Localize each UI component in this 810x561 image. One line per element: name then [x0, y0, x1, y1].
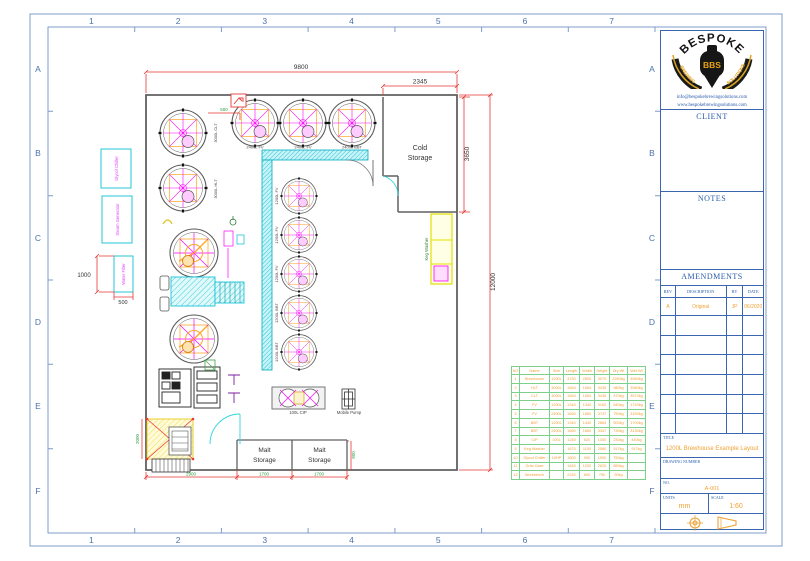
cell-name: Grist Case: [520, 462, 550, 471]
logo-box: BESPOKE BBS BREWING SOLUTIONS info@bespo…: [661, 31, 763, 109]
malt1-label-2: Storage: [253, 457, 276, 464]
dim-pipe-offset: 500: [220, 107, 228, 112]
keg-equipment: [159, 367, 240, 408]
cell-width: 2500: [580, 375, 595, 384]
amendment-empty-row: [661, 354, 763, 374]
cell-length: 1340: [564, 418, 580, 427]
cell-height: 1900: [595, 453, 610, 462]
parts-table-header-cell: Height: [595, 367, 610, 375]
cell-no: 11: [512, 462, 520, 471]
cell-name: HLT: [520, 383, 550, 392]
cell-dry-wt: 917kg: [610, 445, 628, 454]
grid-ruler-right: ABCDEF: [644, 27, 660, 533]
grid-letter: A: [30, 27, 46, 111]
grid-letter: A: [644, 27, 660, 111]
number-section: NO. A-001: [661, 478, 763, 493]
malt2-label-1: Malt: [313, 447, 325, 454]
grid-number: 7: [568, 533, 655, 546]
cell-wet-wt: 1740kg: [628, 401, 646, 410]
col-date: DATE: [743, 286, 763, 297]
label-fv1200-3: 1200L FV: [274, 265, 279, 283]
cell-name: Glycol Chiller: [520, 453, 550, 462]
parts-table-row: 5 FV 2400L 1660 1660 3747 750kg 3150kg: [512, 410, 646, 419]
parts-table-header: NONameSizeLengthWidthHeightDry WtWet Wt: [512, 367, 646, 375]
cell-name: CLT: [520, 392, 550, 401]
brewhouse-mash-tun: [170, 229, 218, 277]
label-hlt: 3000L HLT: [213, 179, 218, 199]
cell-dry-wt: 980kg: [610, 383, 628, 392]
grid-letter: B: [644, 111, 660, 195]
dim-overall-width: 9800: [294, 64, 309, 71]
dim-filter-width: 500: [118, 300, 127, 306]
cell-wet-wt: 3980kg: [628, 383, 646, 392]
parts-table-row: 10 Glycol Chiller 10HP 1800 900 1900 750…: [512, 453, 646, 462]
cell-no: 10: [512, 453, 520, 462]
grid-number: 5: [395, 533, 482, 546]
dim-malt-height: 800: [351, 451, 356, 459]
grid-letter: F: [30, 449, 46, 533]
title-label: TITLE: [663, 435, 674, 440]
cell-height: 2620: [595, 462, 610, 471]
parts-table-header-cell: Wet Wt: [628, 367, 646, 375]
col-by: BY: [727, 286, 744, 297]
cell-no: 4: [512, 401, 520, 410]
dim-filter-height: 1000: [77, 273, 91, 279]
scale-cell: SCALE 1:60: [709, 494, 763, 513]
cell-wet-wt: 4560kg: [628, 375, 646, 384]
cell-name: BBT: [520, 427, 550, 436]
cell-wet-wt: 917kg: [628, 445, 646, 454]
label-steam-generator: Steam Generator: [115, 203, 120, 236]
cell-width: 900: [580, 453, 595, 462]
label-mobile-pump: Mobile Pump: [337, 410, 362, 415]
cell-dry-wt: 750kg: [610, 453, 628, 462]
parts-table-row: 9 Keg Washer 1670 1100 2580 917kg 917kg: [512, 445, 646, 454]
grid-ruler-left: ABCDEF: [30, 27, 46, 533]
notes-section: NOTES: [661, 191, 763, 269]
col-description: DESCRIPTION: [676, 286, 727, 297]
dim-malt-right: 1700: [314, 472, 325, 477]
cell-name: FV: [520, 401, 550, 410]
cell-name: Workbench: [520, 471, 550, 480]
cell-no: 12: [512, 471, 520, 480]
parts-table-row: 4 FV 1200L 1340 1340 3162 540kg 1740kg: [512, 401, 646, 410]
cell-height: 3435: [595, 392, 610, 401]
cell-dry-wt: 90kg: [610, 471, 628, 480]
parts-table-row: 6 BBT 1200L 1340 1340 2864 500kg 1700kg: [512, 418, 646, 427]
amendments-header-row: REV DESCRIPTION BY DATE: [661, 285, 763, 297]
parts-table-header-cell: Name: [520, 367, 550, 375]
amendments-heading: AMENDMENTS: [661, 270, 763, 281]
dim-overall-height: 12000: [490, 273, 497, 291]
cell-size: 10HP: [550, 453, 564, 462]
parts-table-row: 7 BBT 2400L 1660 1660 3347 730kg 3130kg: [512, 427, 646, 436]
cell-length: 1564: [564, 392, 580, 401]
grid-letter: B: [30, 111, 46, 195]
projection-symbol-icons: [682, 515, 742, 531]
cell-dry-wt: 230kg: [610, 436, 628, 445]
cell-dry-wt: 730kg: [610, 427, 628, 436]
label-fv2400-2: 2400L FV: [294, 145, 312, 150]
cell-height: 2580: [595, 445, 610, 454]
cell-dry-wt: 850kg: [610, 462, 628, 471]
parts-table-row: 11 Grist Case 1840 1200 2620 850kg: [512, 462, 646, 471]
grid-number: 4: [308, 533, 395, 546]
cell-width: 1200: [580, 462, 595, 471]
label-fv2400-1: 2400L FV: [246, 145, 264, 150]
cip-skid: [272, 387, 325, 409]
cell-length: 1240: [564, 436, 580, 445]
parts-table-row: 12 Workbench 2240 800 750 90kg: [512, 471, 646, 480]
cell-wet-wt: 3150kg: [628, 410, 646, 419]
amendment-row: A Original JP 06/2020: [661, 297, 763, 315]
cold-storage-label-2: Storage: [408, 155, 433, 162]
cell-no: 8: [512, 436, 520, 445]
cell-width: 1564: [580, 392, 595, 401]
cell-width: 1660: [580, 427, 595, 436]
malt2-label-2: Storage: [308, 457, 331, 464]
cell-length: 2240: [564, 471, 580, 480]
cell-width: 1340: [580, 418, 595, 427]
cell-wet-wt: 1700kg: [628, 418, 646, 427]
cell-width: 620: [580, 436, 595, 445]
keg-washer-box: [431, 214, 452, 284]
title-section: TITLE 1200L Brewhouse Example Layout: [661, 433, 763, 457]
cell-no: 2: [512, 383, 520, 392]
label-fv1200-2: 1200L FV: [274, 226, 279, 244]
grid-letter: C: [30, 196, 46, 280]
cell-length: 1800: [564, 453, 580, 462]
client-label: CLIENT: [661, 110, 763, 121]
cold-storage-label-1: Cold: [413, 145, 428, 152]
cell-length: 4750: [564, 375, 580, 384]
label-water-filter: Water Filter: [121, 263, 126, 285]
cell-length: 1840: [564, 462, 580, 471]
tank-fv1200-2: [280, 216, 317, 253]
cell-size: 1200L: [550, 418, 564, 427]
label-cip: 100L CIP: [289, 410, 307, 415]
drawing-number-section: DRAWING NUMBER: [661, 457, 763, 478]
cell-width: 1660: [580, 410, 595, 419]
projection-symbols: [661, 513, 763, 531]
cell-size: [550, 471, 564, 480]
scale-label: SCALE: [711, 495, 724, 500]
grid-number: 5: [395, 14, 482, 27]
parts-table-header-cell: Length: [564, 367, 580, 375]
label-glycol-chiller: Glycol Chiller: [114, 156, 119, 181]
cell-dry-wt: 750kg: [610, 410, 628, 419]
cell-length: 1340: [564, 401, 580, 410]
cell-dry-wt: 500kg: [610, 418, 628, 427]
tank-hlt: [159, 164, 208, 213]
cell-no: 7: [512, 427, 520, 436]
cell-no: 9: [512, 445, 520, 454]
grid-number: 4: [308, 14, 395, 27]
cell-height: 3162: [595, 401, 610, 410]
grid-number: 7: [568, 14, 655, 27]
cell-name: CIP: [520, 436, 550, 445]
col-rev: REV: [661, 286, 676, 297]
grid-number: 2: [135, 533, 222, 546]
grid-number: 2: [135, 14, 222, 27]
tank-bbt1200-1: [280, 294, 317, 331]
cell-width: 1100: [580, 445, 595, 454]
amendment-empty-row: [661, 413, 763, 433]
malt1-label-1: Malt: [258, 447, 270, 454]
grid-ruler-top: 1234567: [48, 14, 655, 27]
dim-malt-left: 1700: [259, 472, 270, 477]
drawing-number-label: DRAWING NUMBER: [663, 459, 700, 464]
amendment-empty-row: [661, 315, 763, 335]
cell-size: [550, 445, 564, 454]
grid-number: 3: [221, 533, 308, 546]
grid-number: 6: [482, 533, 569, 546]
grid-number: 6: [482, 14, 569, 27]
no-label: NO.: [663, 480, 670, 485]
dim-cold-height: 3650: [464, 146, 471, 161]
cell-height: 2864: [595, 418, 610, 427]
parts-table-header-cell: Size: [550, 367, 564, 375]
parts-table-row: 2 HLT 3000L 1564 1564 3435 980kg 3980kg: [512, 383, 646, 392]
parts-table-row: 3 CLT 3000L 1564 1564 3435 570kg 3570kg: [512, 392, 646, 401]
section-marker: [231, 94, 246, 107]
cell-height: 750: [595, 471, 610, 480]
cell-no: 3: [512, 392, 520, 401]
door-cold-area: [347, 160, 373, 186]
grid-letter: C: [644, 196, 660, 280]
cell-wet-wt: 3570kg: [628, 392, 646, 401]
label-clt: 3000L CLT: [213, 123, 218, 143]
parts-table-row: 8 CIP 100L 1240 620 1300 230kg 440kg: [512, 436, 646, 445]
grid-number: 1: [48, 14, 135, 27]
tank-fv1200-1: [280, 177, 317, 214]
cell-size: 1200L: [550, 375, 564, 384]
cell-width: 1340: [580, 401, 595, 410]
label-bbt1200-2: 1200L BBT: [274, 342, 279, 362]
units-scale-row: UNITS mm SCALE 1:60: [661, 493, 763, 513]
amendment-by: JP: [727, 298, 744, 315]
door-cold-storage: [383, 176, 398, 196]
grid-letter: E: [30, 364, 46, 448]
tank-fv1200-3: [280, 255, 317, 292]
cell-height: 3435: [595, 383, 610, 392]
cell-size: 2400L: [550, 427, 564, 436]
drawing-sheet: 9800 2345 3650 12000 1000 500 500 2900 1…: [0, 0, 810, 561]
cell-size: 3000L: [550, 383, 564, 392]
cell-height: 3347: [595, 427, 610, 436]
mobile-pump: [342, 389, 355, 409]
cell-name: BBT: [520, 418, 550, 427]
cell-width: 800: [580, 471, 595, 480]
brewhouse-kettle: [170, 315, 218, 363]
client-section: CLIENT: [661, 109, 763, 191]
cell-dry-wt: 2260kg: [610, 375, 628, 384]
units-label: UNITS: [663, 495, 675, 500]
grid-letter: D: [30, 280, 46, 364]
tank-fv2400-2: [279, 99, 328, 148]
grid-letter: D: [644, 280, 660, 364]
parts-table-header-cell: Dry Wt: [610, 367, 628, 375]
cell-no: 1: [512, 375, 520, 384]
cell-wet-wt: [628, 453, 646, 462]
cell-width: 1564: [580, 383, 595, 392]
cell-length: 1660: [564, 427, 580, 436]
cell-length: 1670: [564, 445, 580, 454]
cell-no: 5: [512, 410, 520, 419]
grid-number: 3: [221, 14, 308, 27]
parts-table-header-cell: NO: [512, 367, 520, 375]
notes-label: NOTES: [661, 192, 763, 203]
cell-length: 1660: [564, 410, 580, 419]
cold-room-wall: [262, 150, 368, 370]
parts-table-header-cell: Width: [580, 367, 595, 375]
brewhouse-platform: [171, 277, 244, 306]
parts-table-row: 1 Brewhouse 1200L 4750 2500 3070 2260kg …: [512, 375, 646, 384]
dim-left-lower: 2000: [135, 433, 140, 444]
cell-size: 3000L: [550, 392, 564, 401]
cell-height: 1300: [595, 436, 610, 445]
cell-wet-wt: [628, 471, 646, 480]
amendment-description: Original: [676, 298, 727, 315]
grid-number: 1: [48, 533, 135, 546]
dim-bottom-left: 2900: [186, 472, 197, 477]
company-email: info@bespokebrewingsolutions.com: [661, 94, 763, 102]
cell-wet-wt: [628, 462, 646, 471]
cell-name: Brewhouse: [520, 375, 550, 384]
grid-letter: F: [644, 449, 660, 533]
cell-wet-wt: 3130kg: [628, 427, 646, 436]
amendment-rev: A: [661, 298, 676, 315]
cell-size: 1200L: [550, 401, 564, 410]
cell-dry-wt: 570kg: [610, 392, 628, 401]
logo-brand-center: BBS: [703, 60, 721, 70]
cell-height: 3747: [595, 410, 610, 419]
tank-clt: [159, 109, 208, 158]
amendment-empty-row: [661, 374, 763, 394]
cell-wet-wt: 440kg: [628, 436, 646, 445]
amendment-empty-row: [661, 394, 763, 414]
units-cell: UNITS mm: [661, 494, 709, 513]
cell-size: 2400L: [550, 410, 564, 419]
amendment-date: 06/2020: [743, 298, 763, 315]
label-bbt1200-1: 1200L BBT: [274, 303, 279, 323]
tank-bbt2400: [328, 99, 377, 148]
label-bbt2400: 2400L BBT: [342, 145, 362, 150]
amendments-table: REV DESCRIPTION BY DATE A Original JP 06…: [661, 285, 763, 433]
cell-name: Keg Washer: [520, 445, 550, 454]
grid-letter: E: [644, 364, 660, 448]
cell-size: 100L: [550, 436, 564, 445]
cell-length: 1564: [564, 383, 580, 392]
amendments-section: AMENDMENTS REV DESCRIPTION BY DATE A Ori…: [661, 269, 763, 433]
dim-cold-width: 2345: [413, 79, 428, 86]
cell-no: 6: [512, 418, 520, 427]
cell-height: 3070: [595, 375, 610, 384]
room-labels: Cold Storage Malt Storage Malt Storage: [253, 145, 432, 464]
company-logo: BESPOKE BBS BREWING SOLUTIONS: [661, 31, 763, 89]
tank-bbt1200-2: [280, 333, 317, 370]
label-fv1200-1: 1200L FV: [274, 187, 279, 205]
label-keg-washer: Keg Washer: [424, 237, 429, 260]
title-block: BESPOKE BBS BREWING SOLUTIONS info@bespo…: [660, 30, 764, 530]
cell-dry-wt: 540kg: [610, 401, 628, 410]
amendment-empty-row: [661, 335, 763, 355]
cell-name: FV: [520, 410, 550, 419]
cell-size: [550, 462, 564, 471]
parts-table: NONameSizeLengthWidthHeightDry WtWet Wt …: [511, 366, 645, 480]
door-main: [210, 414, 240, 444]
grid-ruler-bottom: 1234567: [48, 533, 655, 546]
